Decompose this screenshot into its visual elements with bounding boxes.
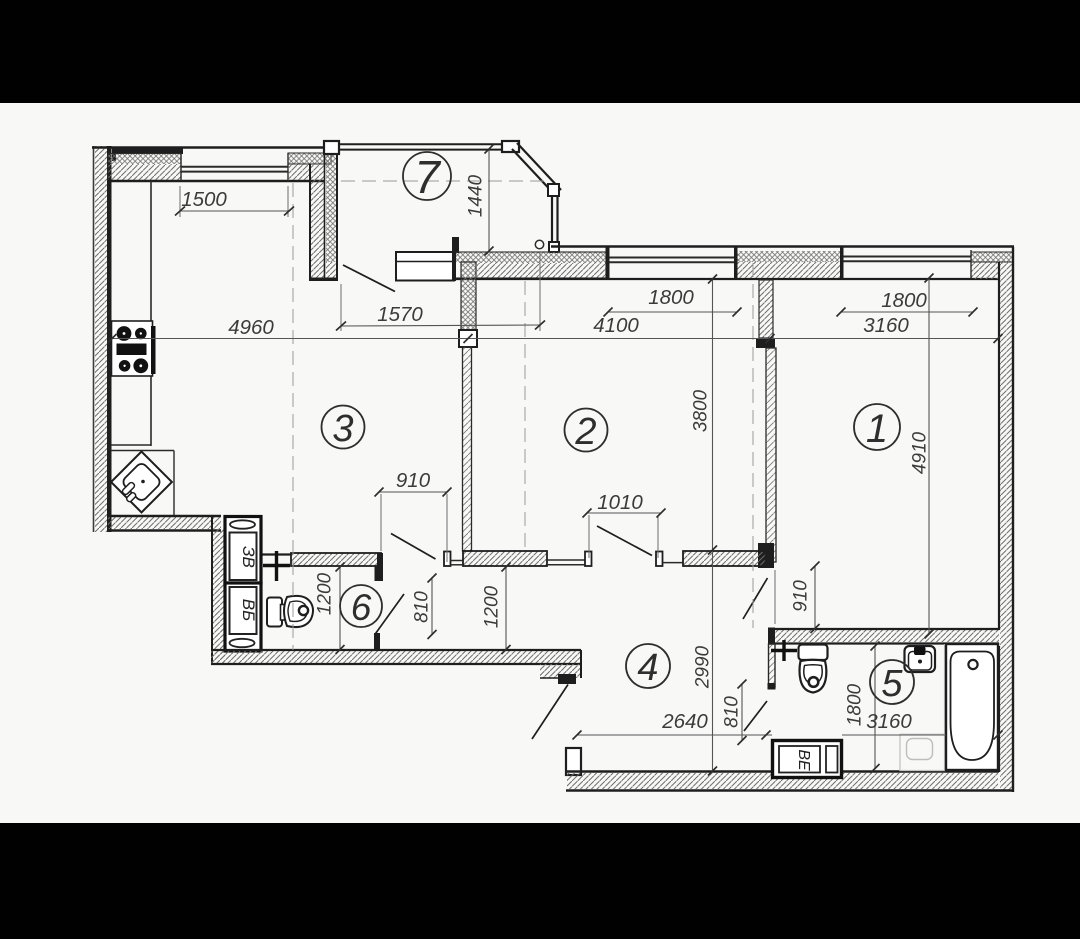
- svg-text:ЗВ: ЗВ: [239, 546, 258, 568]
- svg-text:2640: 2640: [661, 710, 708, 733]
- svg-text:1440: 1440: [466, 174, 487, 217]
- svg-text:5: 5: [881, 663, 903, 705]
- svg-text:1570: 1570: [377, 303, 423, 326]
- svg-text:1800: 1800: [881, 289, 927, 312]
- svg-text:810: 810: [722, 696, 743, 728]
- svg-text:3160: 3160: [863, 314, 909, 337]
- svg-text:3: 3: [332, 408, 353, 450]
- svg-text:1200: 1200: [482, 585, 503, 628]
- svg-text:4: 4: [637, 647, 658, 689]
- svg-text:1200: 1200: [315, 572, 336, 615]
- svg-text:1: 1: [866, 407, 888, 451]
- svg-text:4910: 4910: [910, 431, 931, 474]
- svg-text:6: 6: [351, 587, 372, 628]
- svg-text:1800: 1800: [648, 286, 694, 309]
- svg-text:1800: 1800: [845, 683, 866, 726]
- svg-text:2990: 2990: [693, 645, 714, 689]
- svg-text:ВЕ: ВЕ: [795, 749, 812, 771]
- svg-text:3800: 3800: [691, 389, 712, 432]
- svg-text:4100: 4100: [593, 314, 639, 337]
- svg-text:810: 810: [412, 591, 433, 623]
- svg-text:910: 910: [791, 580, 812, 612]
- svg-text:910: 910: [396, 469, 431, 492]
- svg-text:7: 7: [414, 151, 441, 203]
- svg-text:2: 2: [574, 411, 596, 453]
- svg-text:1500: 1500: [181, 188, 227, 211]
- svg-text:ВБ: ВБ: [239, 599, 258, 621]
- svg-text:1010: 1010: [597, 491, 643, 514]
- svg-text:3160: 3160: [866, 710, 912, 733]
- svg-text:4960: 4960: [228, 316, 274, 339]
